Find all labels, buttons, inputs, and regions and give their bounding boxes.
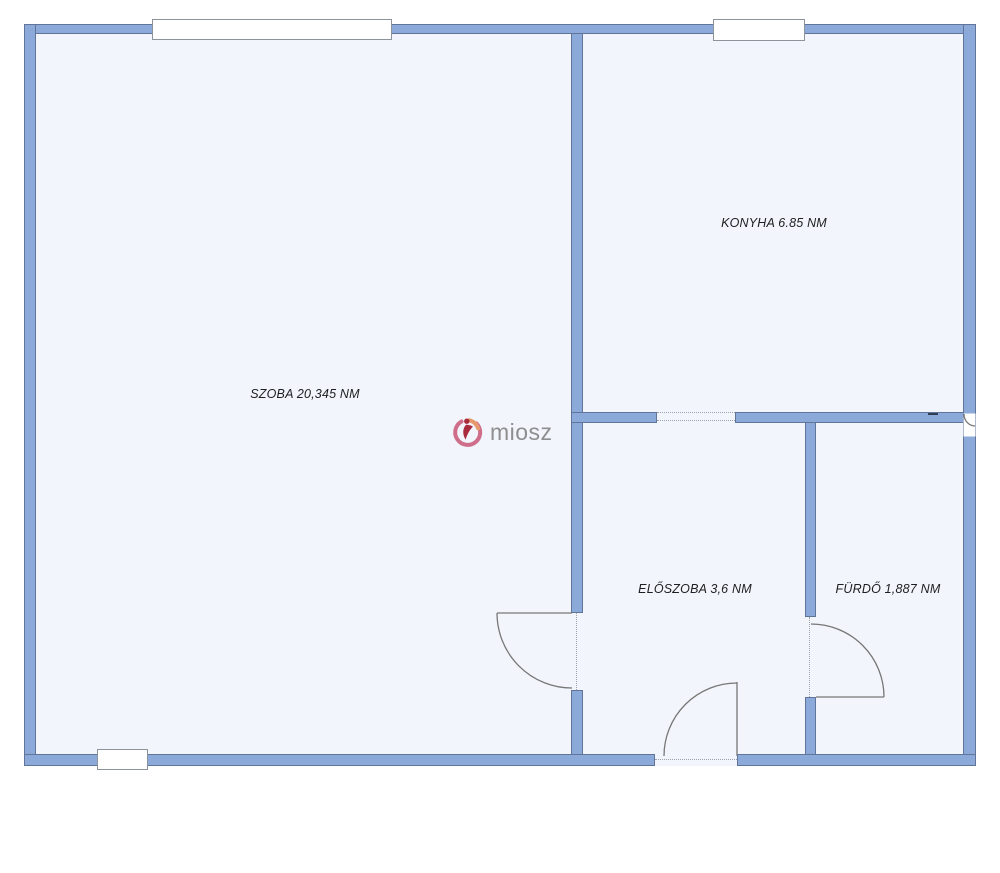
dotted-kitchen-passage-bottom <box>657 420 735 421</box>
label-furdo: FÜRDŐ 1,887 NM <box>836 582 941 596</box>
gap-entrance-door <box>655 754 737 766</box>
dotted-szoba-door <box>576 613 577 690</box>
window-kitchen <box>713 19 805 41</box>
floor-plan: SZOBA 20,345 NM KONYHA 6.85 NM ELŐSZOBA … <box>0 0 1000 873</box>
wall-right <box>963 24 976 766</box>
wall-center-lower <box>571 690 583 755</box>
wall-kitchen-bottom-right <box>735 412 964 423</box>
wall-kitchen-bottom-left <box>571 412 657 423</box>
label-szoba: SZOBA 20,345 NM <box>250 387 360 401</box>
miosz-logo-icon <box>450 416 483 449</box>
dotted-bath-door <box>809 617 810 697</box>
window-top-left <box>152 19 392 40</box>
gap-bath-door <box>805 617 816 697</box>
gap-szoba-door <box>571 613 583 690</box>
gap-kitchen-passage <box>657 412 735 423</box>
dotted-kitchen-passage-top <box>657 412 735 413</box>
miosz-logo-text: miosz <box>490 416 553 449</box>
window-bottom <box>97 749 148 770</box>
wall-bath-lower <box>805 697 816 755</box>
wall-center-upper <box>571 33 583 613</box>
wall-bath-upper <box>805 422 816 617</box>
wall-left <box>24 24 36 766</box>
dotted-entrance-door <box>655 759 737 760</box>
wall-bottom-right <box>737 754 976 766</box>
label-eloszoba: ELŐSZOBA 3,6 NM <box>638 582 752 596</box>
miosz-watermark: miosz <box>450 416 553 449</box>
label-konyha: KONYHA 6.85 NM <box>721 216 827 230</box>
